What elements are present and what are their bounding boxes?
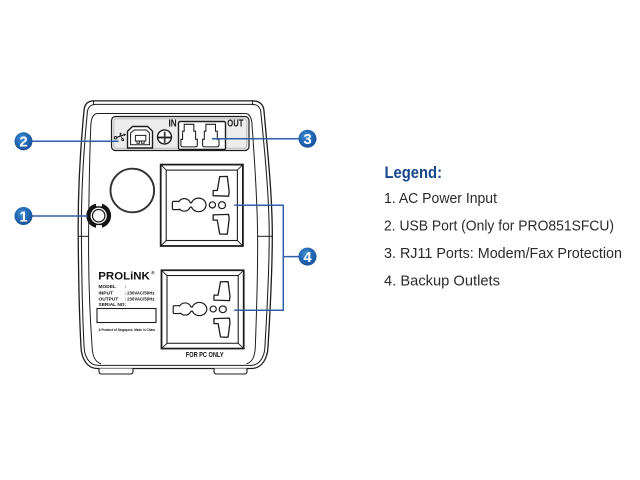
svg-text:INPUT: INPUT	[99, 290, 113, 296]
svg-text:3. RJ11 Ports: Modem/Fax Prote: 3. RJ11 Ports: Modem/Fax Protection	[384, 245, 622, 262]
svg-text:3: 3	[303, 131, 311, 148]
svg-text:4. Backup Outlets: 4. Backup Outlets	[384, 273, 500, 290]
svg-text:IN: IN	[169, 118, 177, 129]
svg-text:OUTPUT: OUTPUT	[99, 296, 119, 302]
svg-text:: 230VAC/50Hz: : 230VAC/50Hz	[125, 296, 156, 302]
svg-text:MODEL: MODEL	[99, 284, 116, 290]
svg-text:A Product of Singapore, Made i: A Product of Singapore, Made in China	[99, 328, 156, 332]
svg-text:OUT: OUT	[227, 118, 244, 129]
svg-text:PROLiNK: PROLiNK	[98, 271, 150, 283]
svg-text:FOR PC ONLY: FOR PC ONLY	[186, 352, 224, 360]
svg-text:: 230VAC/50Hz: : 230VAC/50Hz	[125, 290, 156, 296]
svg-text:2. USB Port (Only for PRO851SF: 2. USB Port (Only for PRO851SFCU)	[384, 217, 614, 234]
svg-text:Legend:: Legend:	[385, 164, 443, 182]
svg-text:4: 4	[303, 249, 312, 266]
svg-text:1: 1	[19, 208, 27, 225]
svg-text:1. AC Power Input: 1. AC Power Input	[384, 190, 498, 207]
svg-text:2: 2	[19, 134, 27, 151]
svg-text:SERIAL NO: SERIAL NO	[99, 302, 125, 308]
